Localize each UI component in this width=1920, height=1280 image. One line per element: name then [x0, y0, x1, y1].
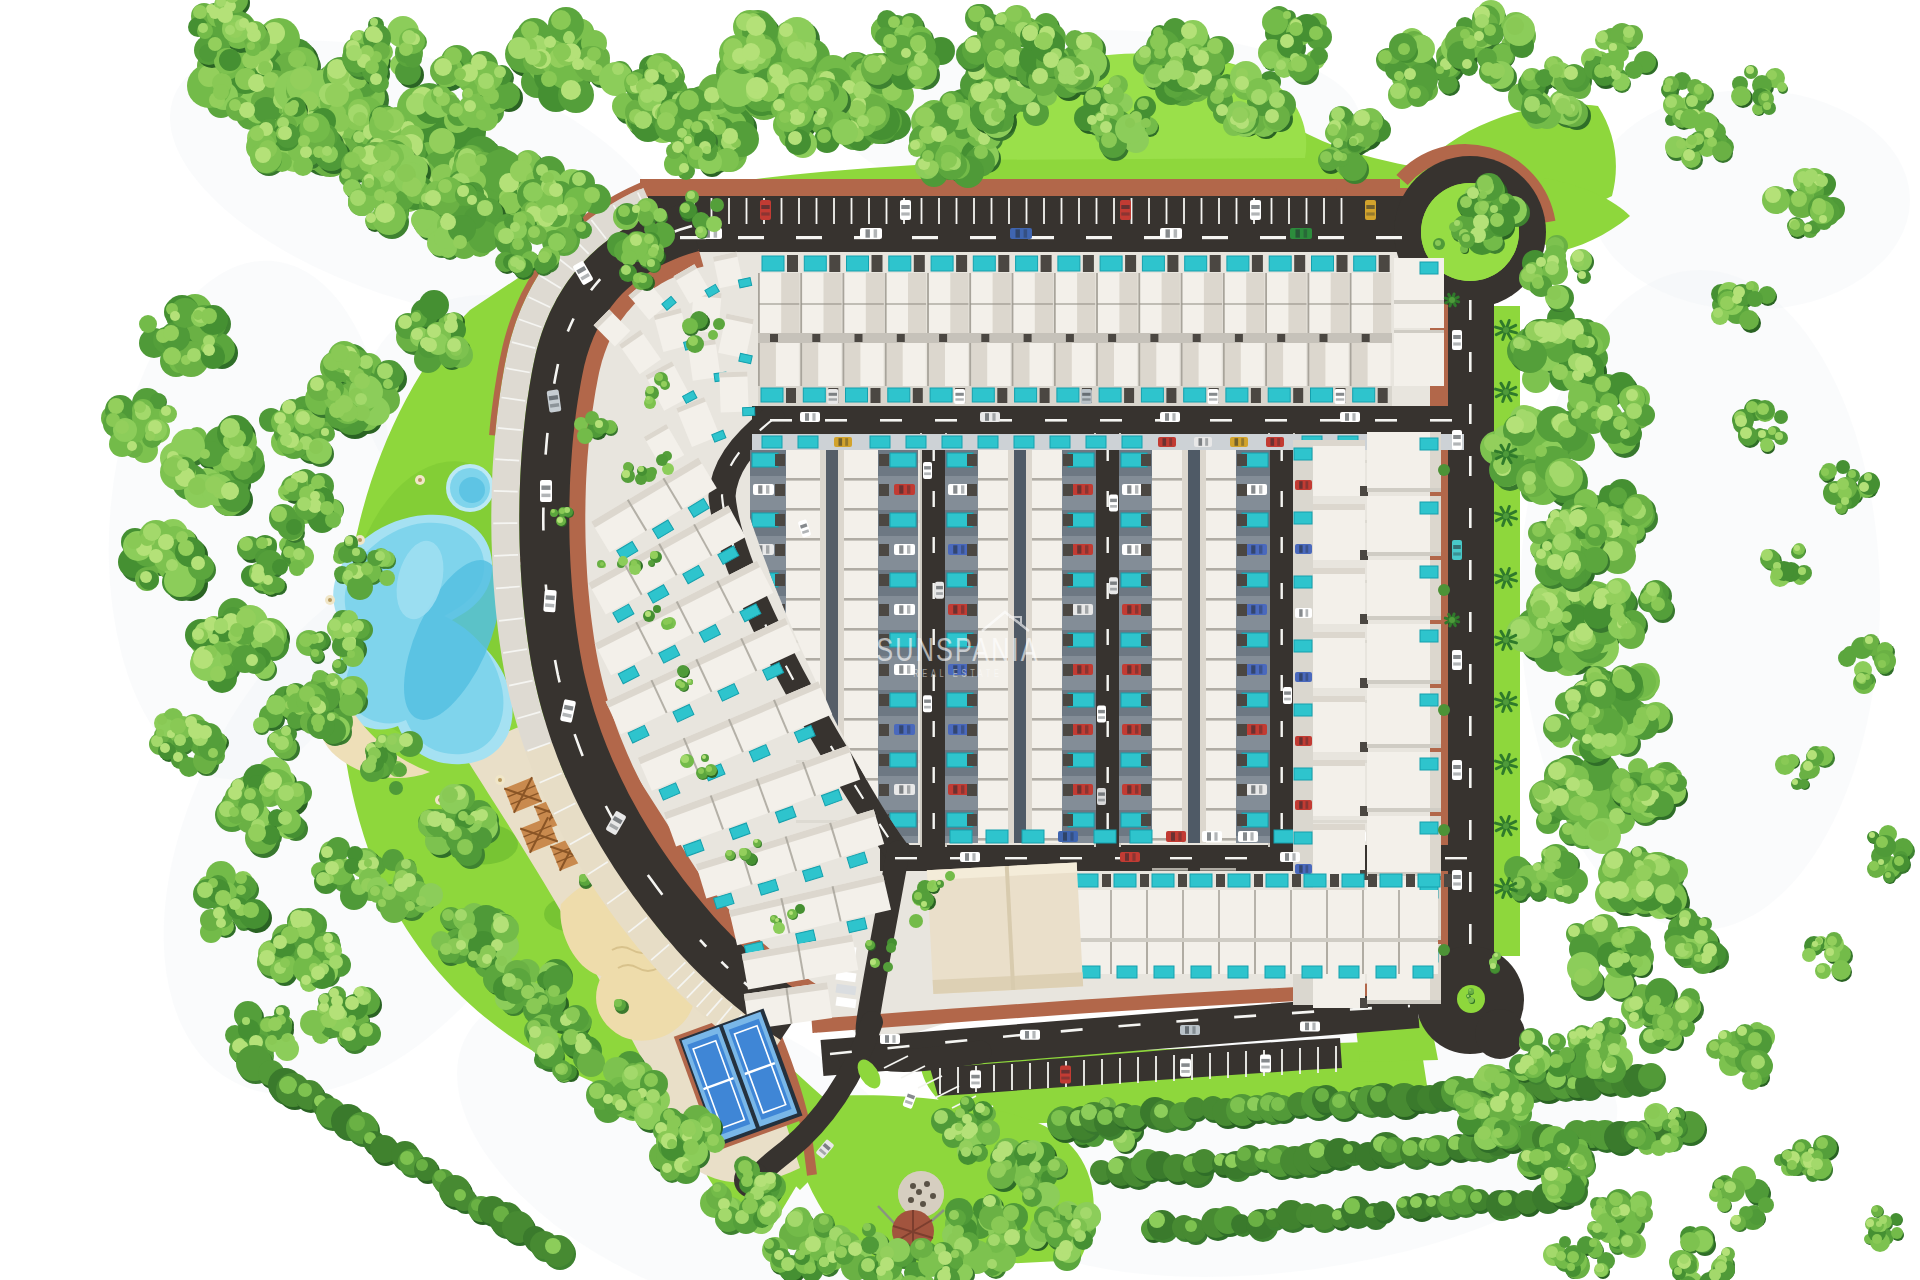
svg-text:REAL ESTATE: REAL ESTATE	[913, 668, 1002, 679]
svg-text:SUNSPANIA: SUNSPANIA	[876, 630, 1039, 668]
